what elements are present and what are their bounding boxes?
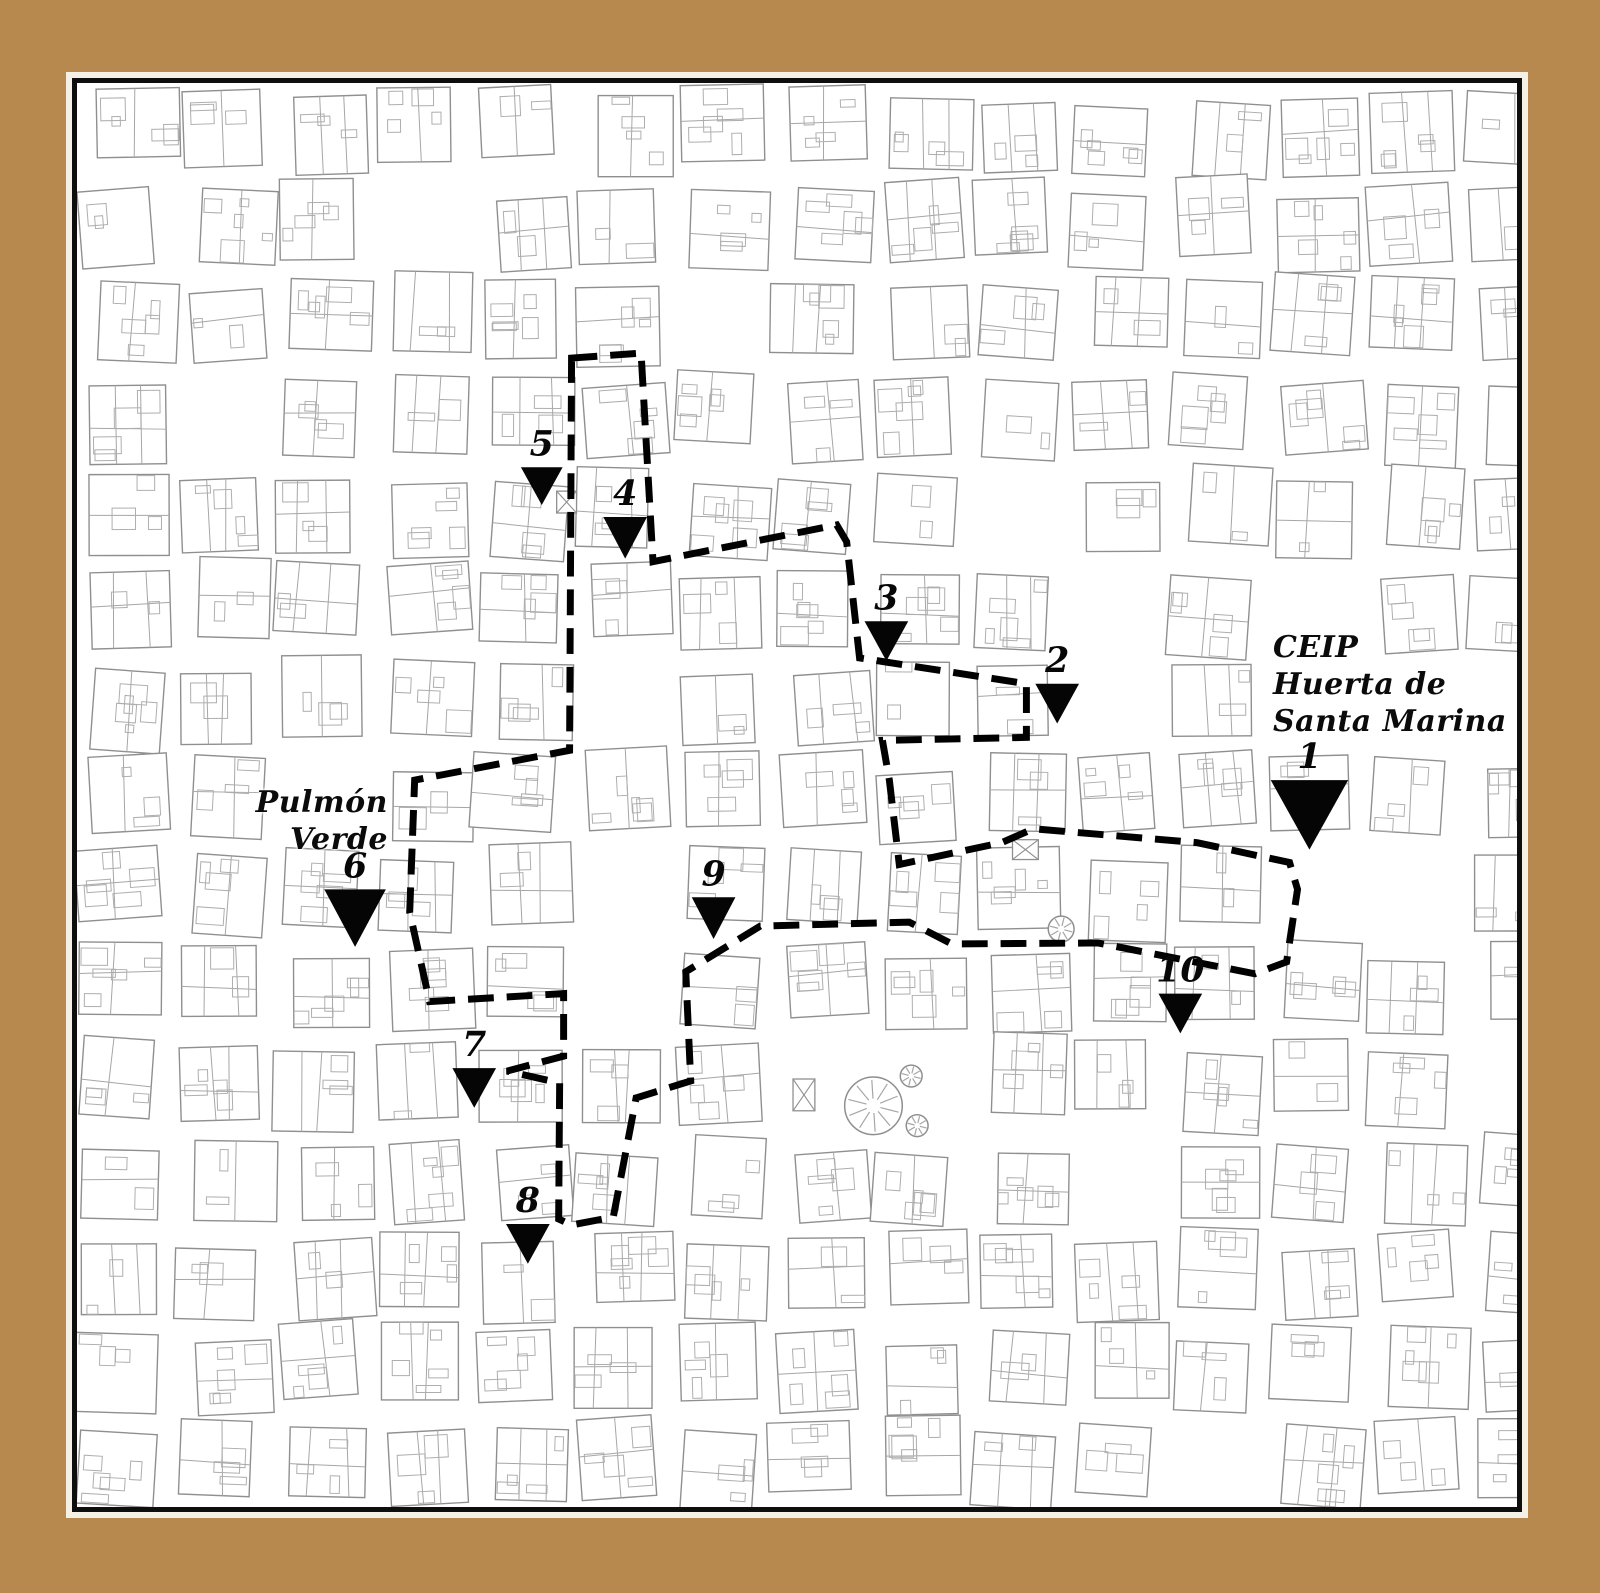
plaza-rosette-icon [906,1115,928,1137]
label-pulmon-verde: Pulmón Verde [113,784,388,858]
scanned-map-page: { "page": { "description_label": "Street… [0,0,1600,1593]
marker-number-label: 4 [613,473,637,514]
crossed-box-icon [793,1079,815,1111]
label-ceip-huerta-de-santa-marina: CEIP Huerta de Santa Marina [1273,629,1507,740]
park-label-line1: Pulmón [113,784,388,821]
school-label-line2: Huerta de [1273,666,1507,703]
plaza-rosette-icon [900,1065,922,1087]
school-label-line1: CEIP [1273,629,1507,666]
crossed-box-icon [1013,840,1039,860]
map-marker-1: 1 [1271,736,1348,849]
plaza-rosette-icon [1048,916,1074,942]
marker-number-label: 1 [1297,736,1321,777]
marker-number-label: 10 [1156,950,1204,991]
marker-number-label: 9 [701,853,725,894]
marker-number-label: 8 [515,1180,540,1221]
school-label-line3: Santa Marina [1273,703,1507,740]
map-frame: 12345678910 CEIP Huerta de Santa Marina … [72,78,1522,1512]
marker-number-label: 5 [530,423,554,464]
marker-number-label: 2 [1044,640,1069,681]
marker-number-label: 3 [874,577,898,618]
plaza-rosette-icon [845,1077,903,1135]
park-label-line2: Verde [113,821,388,858]
marker-number-label: 7 [462,1024,486,1065]
